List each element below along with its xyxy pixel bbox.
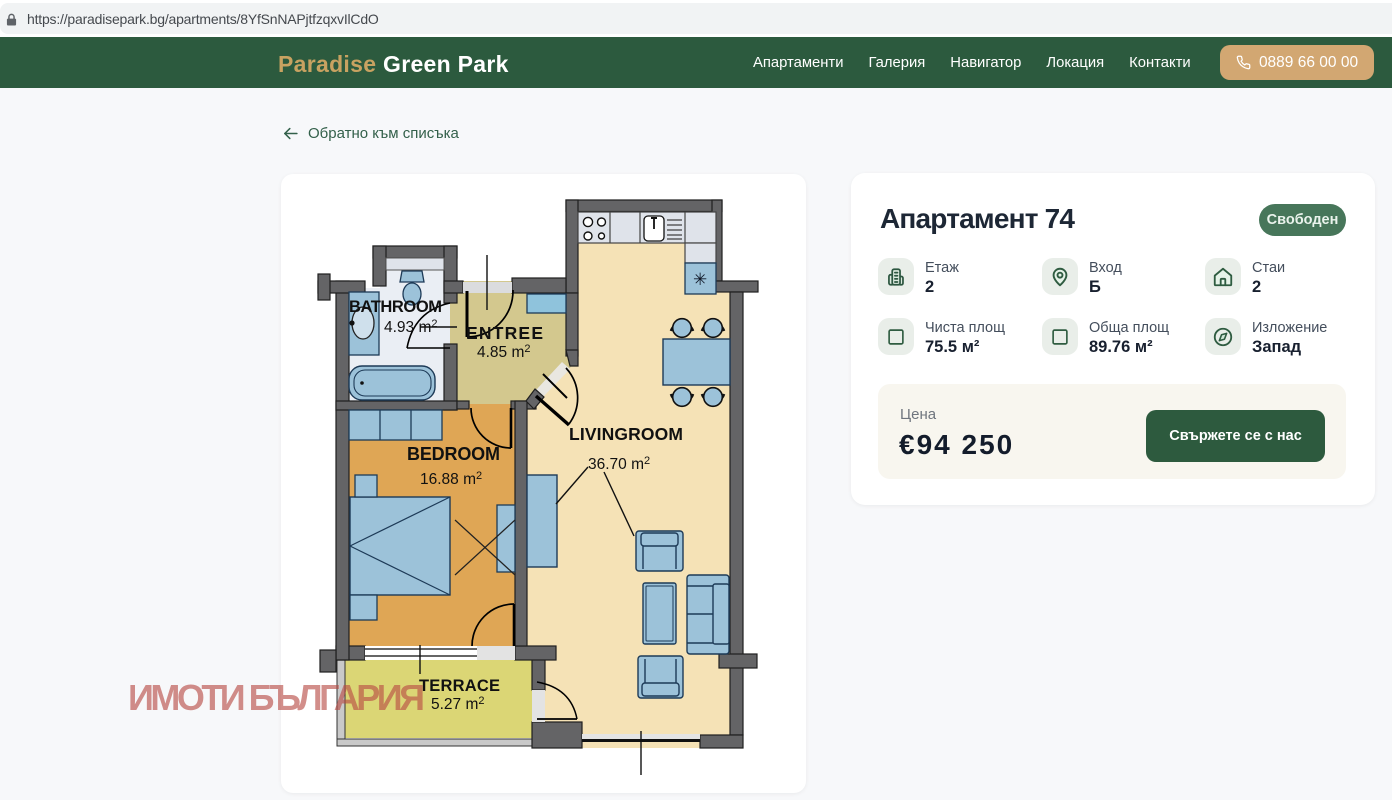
svg-text:16.88 m2: 16.88 m2 [420,470,482,488]
svg-text:LIVINGROOM: LIVINGROOM [569,424,683,444]
svg-text:ENTREE: ENTREE [466,323,543,343]
svg-text:4.93 m2: 4.93 m2 [384,318,438,336]
svg-text:✳: ✳ [693,270,707,289]
svg-text:4.85 m2: 4.85 m2 [477,343,531,361]
svg-text:BEDROOM: BEDROOM [407,444,500,464]
svg-text:ИМОТИ БЪЛГАРИЯ: ИМОТИ БЪЛГАРИЯ [128,677,425,718]
svg-text:36.70 m2: 36.70 m2 [588,455,650,473]
svg-text:BATHROOM: BATHROOM [349,298,442,316]
